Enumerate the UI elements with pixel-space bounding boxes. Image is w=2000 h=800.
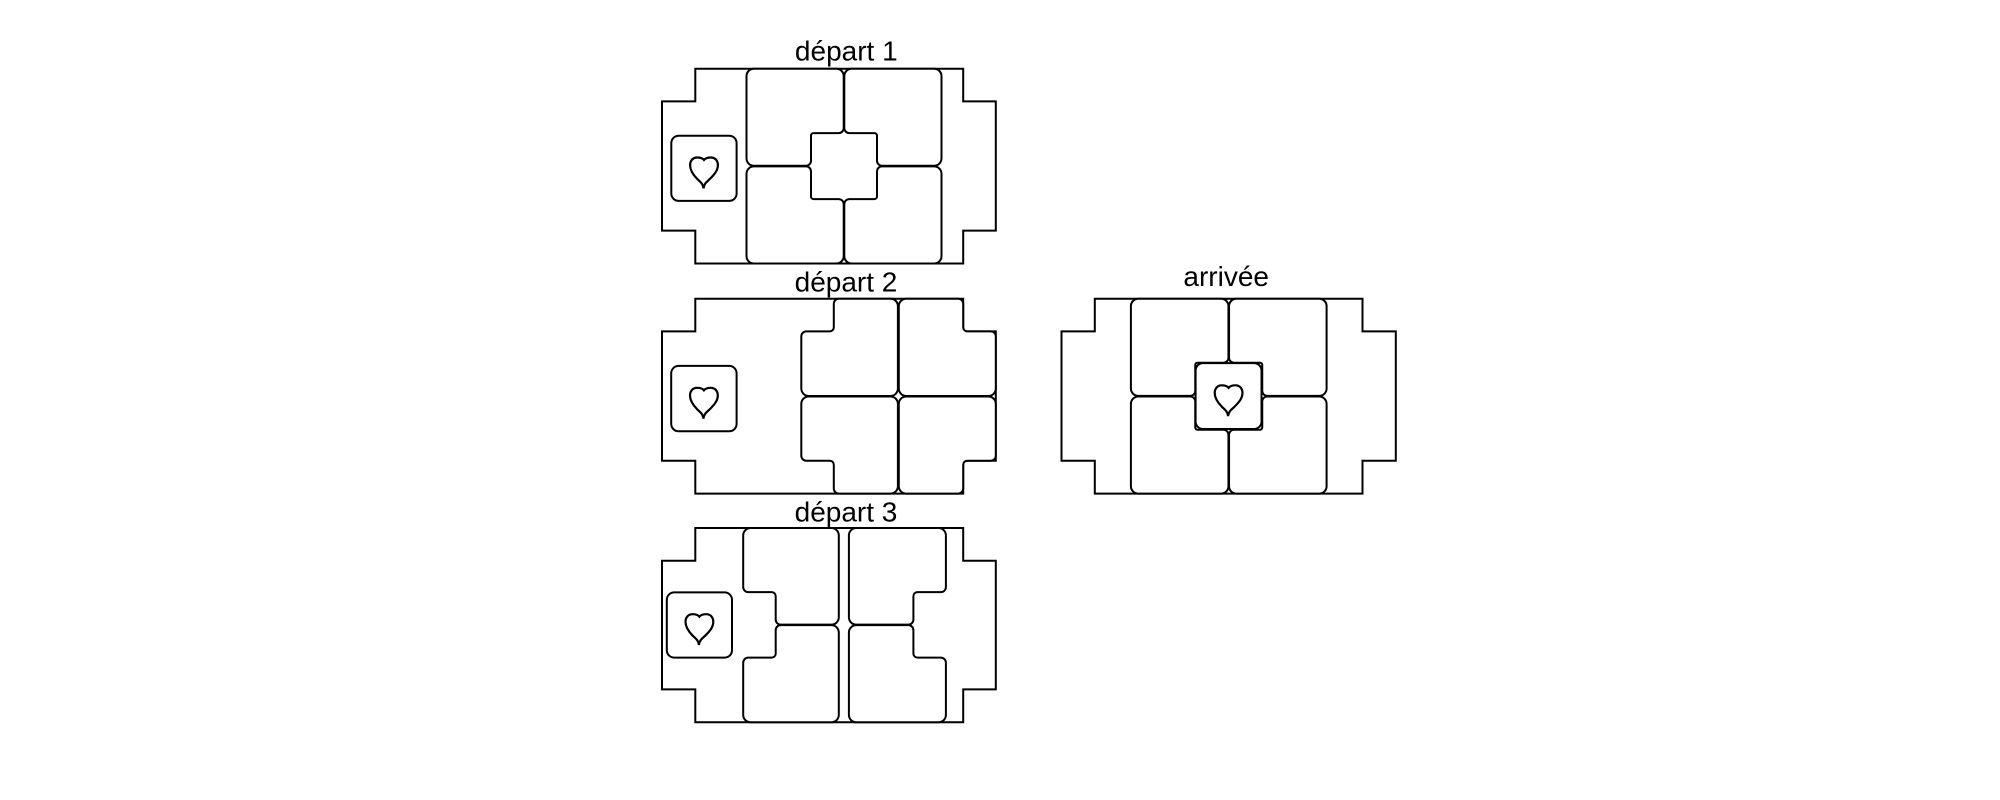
svg-text:départ 1: départ 1 — [795, 35, 898, 66]
svg-text:arrivée: arrivée — [1183, 261, 1269, 292]
svg-text:départ 2: départ 2 — [795, 267, 898, 298]
svg-text:départ 3: départ 3 — [795, 496, 898, 527]
